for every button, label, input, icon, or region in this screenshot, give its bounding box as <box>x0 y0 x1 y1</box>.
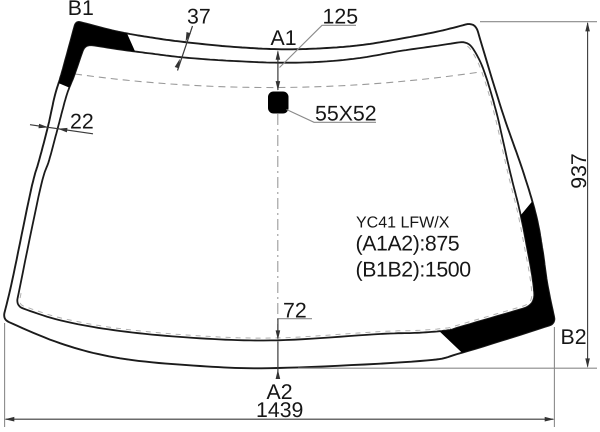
svg-text:A1: A1 <box>271 26 297 50</box>
svg-text:YC41 LFW/X: YC41 LFW/X <box>356 214 450 231</box>
svg-text:55X52: 55X52 <box>315 101 377 125</box>
svg-text:B2: B2 <box>561 325 587 349</box>
svg-text:1439: 1439 <box>256 398 303 422</box>
svg-text:125: 125 <box>323 4 359 28</box>
svg-text:72: 72 <box>283 298 307 322</box>
svg-text:(A1A2):875: (A1A2):875 <box>356 232 460 256</box>
svg-text:(B1B2):1500: (B1B2):1500 <box>356 258 472 282</box>
svg-text:937: 937 <box>567 153 591 189</box>
svg-text:22: 22 <box>70 110 94 134</box>
svg-text:B1: B1 <box>68 0 94 20</box>
svg-text:37: 37 <box>187 4 211 28</box>
